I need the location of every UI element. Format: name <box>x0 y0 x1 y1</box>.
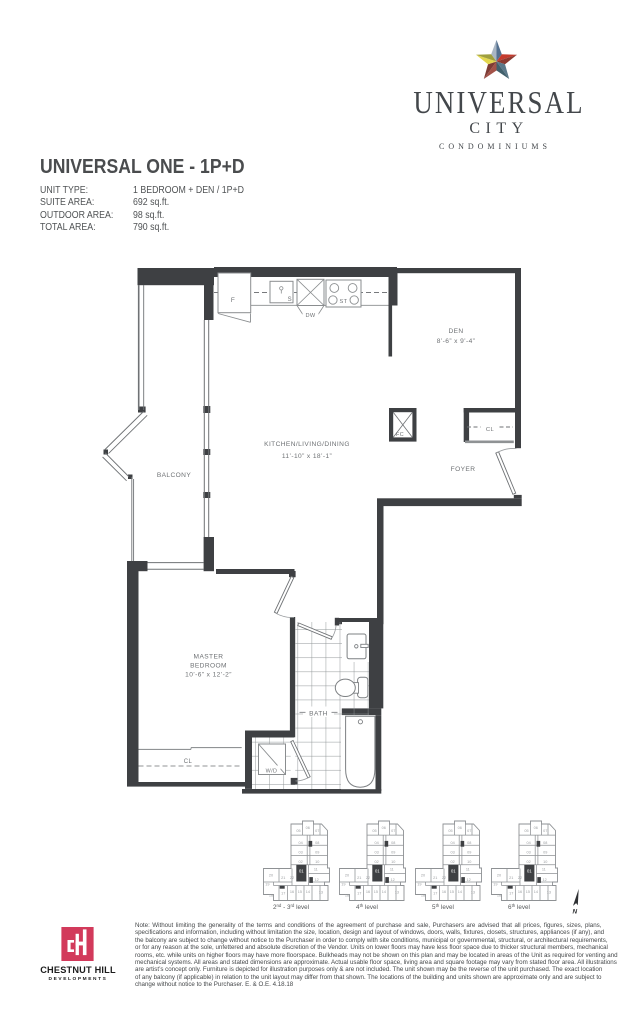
svg-text:MASTER: MASTER <box>194 654 224 661</box>
svg-text:KITCHEN/LIVING/DINING: KITCHEN/LIVING/DINING <box>264 441 350 448</box>
svg-text:S: S <box>288 297 292 303</box>
svg-text:DW: DW <box>305 313 315 319</box>
svg-text:4th level: 4th level <box>356 903 378 911</box>
svg-text:11’-10” x 18’-1”: 11’-10” x 18’-1” <box>282 453 332 460</box>
svg-text:F: F <box>231 297 235 304</box>
svg-text:8’-6” x 9’-4”: 8’-6” x 9’-4” <box>437 338 476 345</box>
svg-text:BALCONY: BALCONY <box>157 472 192 479</box>
svg-text:2nd - 3rd level: 2nd - 3rd level <box>273 903 309 911</box>
svg-text:10’-6” x 12’-2”: 10’-6” x 12’-2” <box>185 672 232 679</box>
svg-text:FC: FC <box>396 432 404 438</box>
svg-text:DEN: DEN <box>448 328 463 335</box>
svg-text:5th level: 5th level <box>432 903 454 911</box>
svg-text:CL: CL <box>486 427 495 433</box>
svg-text:W/D: W/D <box>266 769 278 775</box>
svg-text:CL: CL <box>184 759 193 765</box>
svg-text:FOYER: FOYER <box>451 466 476 473</box>
svg-text:BEDROOM: BEDROOM <box>190 662 227 669</box>
svg-text:N: N <box>572 909 577 916</box>
svg-text:BATH: BATH <box>309 710 328 717</box>
svg-text:6th level: 6th level <box>508 903 530 911</box>
svg-text:ST: ST <box>340 299 348 305</box>
